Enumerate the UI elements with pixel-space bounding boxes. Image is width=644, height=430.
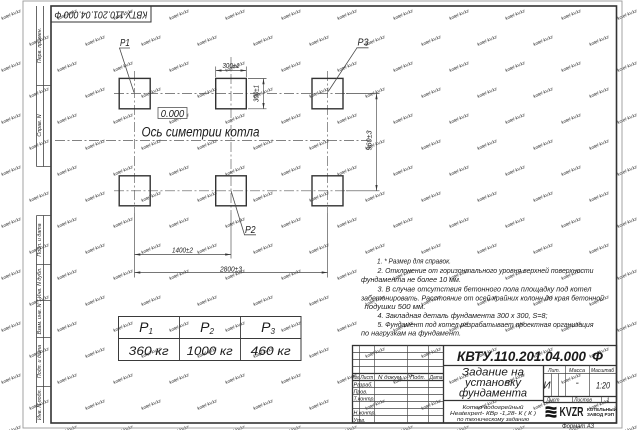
svg-text:КОТЕЛЬНЫЙ: КОТЕЛЬНЫЙ (587, 405, 617, 412)
svg-text:фундамента не более 10 мм.: фундамента не более 10 мм. (361, 275, 461, 284)
svg-text:И: И (543, 381, 551, 392)
svg-text:КВТУ.110.201.04.000 Ф: КВТУ.110.201.04.000 Ф (54, 8, 147, 19)
svg-text:фундамента: фундамента (459, 388, 527, 400)
svg-text:Подп. и дата: Подп. и дата (37, 223, 43, 256)
svg-text:0.000: 0.000 (161, 108, 185, 120)
svg-text:ЗАВОД РЭП: ЗАВОД РЭП (587, 412, 614, 417)
svg-text:Котел водогрейный: Котел водогрейный (463, 404, 524, 411)
svg-text:Лит.: Лит. (547, 368, 560, 374)
svg-text:по нагрузкам на фундамент.: по нагрузкам на фундамент. (361, 329, 461, 338)
svg-text:Инв. N подл.: Инв. N подл. (37, 389, 43, 420)
svg-text:Изм.: Изм. (353, 375, 360, 381)
svg-text:Инв. N дубл.: Инв. N дубл. (37, 268, 43, 299)
svg-text:Формат А3: Формат А3 (562, 424, 595, 430)
svg-text:2. Отклонение от горизонтально: 2. Отклонение от горизонтального уровня … (377, 266, 594, 275)
svg-text:по техническому заданию: по техническому заданию (457, 417, 529, 423)
svg-text:Утв.: Утв. (354, 418, 366, 424)
svg-text:Перв. примен.: Перв. примен. (37, 28, 43, 63)
svg-text:Пров.: Пров. (354, 389, 368, 395)
svg-text:Лист: Лист (359, 375, 374, 381)
svg-text:960±3: 960±3 (366, 130, 373, 150)
svg-text:460 кг: 460 кг (251, 344, 291, 358)
svg-text:Р2: Р2 (245, 225, 256, 236)
svg-text:Разраб.: Разраб. (354, 382, 373, 388)
svg-text:N докум.: N докум. (378, 375, 403, 381)
svg-text:4. Закладная деталь фундамента: 4. Закладная деталь фундамента 300 х 300… (378, 311, 548, 320)
svg-text:Р1: Р1 (120, 38, 130, 49)
svg-text:подушки 500 мм.: подушки 500 мм. (365, 302, 426, 311)
svg-text:360 кг: 360 кг (129, 344, 169, 358)
svg-text:2800±3: 2800±3 (219, 266, 242, 273)
svg-text:1. * Размер для справок.: 1. * Размер для справок. (377, 257, 451, 266)
svg-text:Ось симетрии котла: Ось симетрии котла (142, 124, 260, 140)
svg-text:Лист: Лист (546, 398, 561, 404)
svg-text:КВТУ.110.201.04.000: КВТУ.110.201.04.000 (457, 348, 586, 364)
svg-text:Н.контр.: Н.контр. (354, 411, 376, 417)
svg-text:Дата: Дата (429, 375, 443, 381)
svg-text:Справ. N: Справ. N (37, 114, 43, 136)
svg-text:KVZR: KVZR (560, 404, 584, 419)
svg-text:Масса: Масса (569, 368, 585, 374)
svg-text:Взам. инв. N: Взам. инв. N (37, 303, 43, 334)
svg-text:Листов: Листов (573, 398, 592, 404)
svg-text:Т.контр.: Т.контр. (354, 397, 375, 403)
svg-text:1000 кг: 1000 кг (187, 344, 233, 358)
svg-text:1: 1 (607, 398, 610, 404)
svg-text:Масштаб: Масштаб (591, 368, 615, 374)
svg-text:Ф: Ф (592, 348, 603, 364)
svg-text:3. В случае отсутствия бетонно: 3. В случае отсутствия бетонного пола пл… (378, 285, 592, 294)
svg-text:Р3: Р3 (358, 38, 369, 49)
svg-text:Подп. и дата: Подп. и дата (37, 345, 43, 378)
svg-text:Подп.: Подп. (410, 375, 425, 381)
svg-text:1:20: 1:20 (596, 380, 611, 391)
svg-text:300±1: 300±1 (223, 63, 240, 70)
svg-text:1400±2: 1400±2 (172, 248, 193, 255)
svg-text:300±1: 300±1 (254, 85, 261, 102)
